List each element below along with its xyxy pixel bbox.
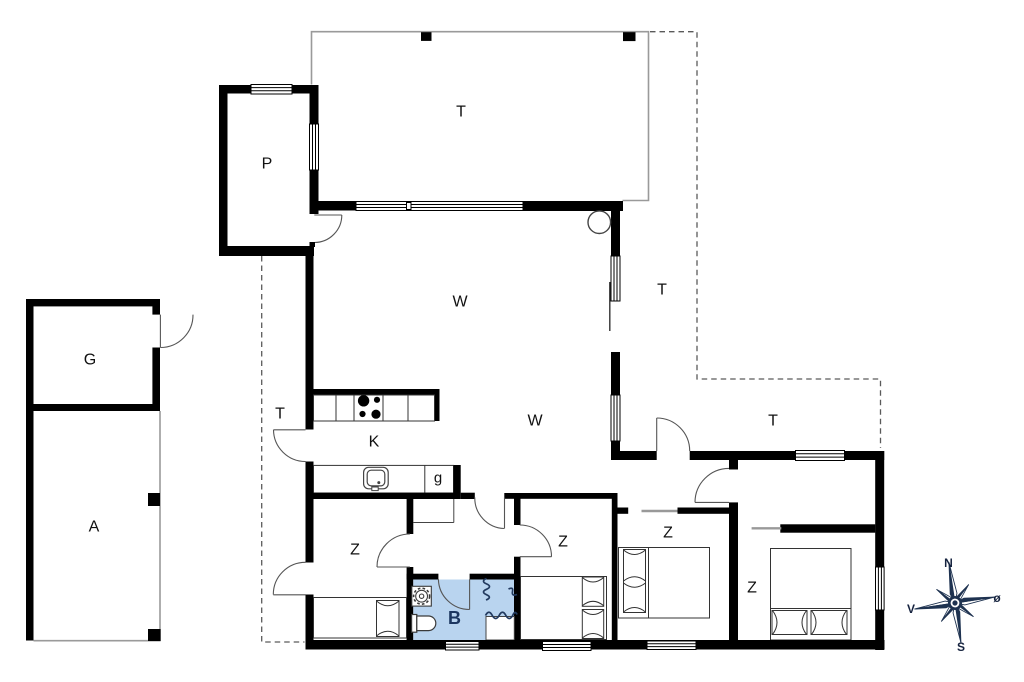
- svg-text:W: W: [527, 413, 543, 430]
- svg-text:T: T: [768, 413, 778, 430]
- svg-text:T: T: [275, 406, 285, 423]
- svg-text:g: g: [434, 470, 442, 487]
- svg-text:B: B: [448, 608, 461, 628]
- svg-text:Z: Z: [558, 534, 568, 551]
- svg-text:G: G: [84, 352, 96, 369]
- svg-text:V: V: [907, 602, 915, 616]
- svg-text:T: T: [657, 282, 667, 299]
- svg-text:Z: Z: [350, 542, 360, 559]
- svg-text:T: T: [456, 104, 466, 121]
- svg-text:W: W: [452, 294, 468, 311]
- svg-text:Z: Z: [663, 525, 673, 542]
- svg-text:A: A: [89, 519, 100, 536]
- svg-text:ø: ø: [993, 591, 1001, 605]
- svg-text:P: P: [262, 156, 273, 173]
- svg-text:Z: Z: [747, 580, 757, 597]
- svg-text:K: K: [369, 434, 380, 451]
- svg-text:S: S: [957, 640, 965, 654]
- svg-text:N: N: [944, 556, 953, 570]
